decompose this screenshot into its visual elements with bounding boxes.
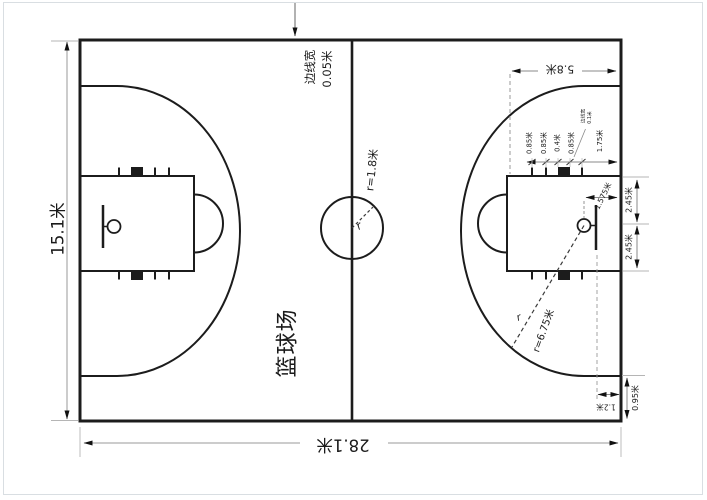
right-basket [578,205,597,250]
lane-hash-label-3: 0.4米 [553,134,562,152]
lane-hash-label-2: 0.85米 [539,132,548,154]
right-free-throw-circle [478,195,507,253]
line-width-leader [574,129,586,157]
three-point-gap-label: 0.95米 [630,385,640,411]
court-diagram-svg: 15.1米 边线宽 0.05米 r=1.8米 r 篮球场 28.1米 5.8米 … [0,0,707,500]
court-lines [80,40,621,421]
three-point-radius-symbol: r [515,312,523,324]
left-free-throw-circle [194,195,223,253]
free-throw-distance-label: 5.8米 [546,63,575,76]
lane-line-width-label-line1: 边线宽 [580,109,587,124]
right-key-hash-marks [532,167,582,280]
labels: 15.1米 边线宽 0.05米 r=1.8米 r 篮球场 28.1米 5.8米 … [49,49,641,454]
center-radius-symbol: r [354,219,366,233]
left-neutral-zone-bottom [131,271,143,280]
lane-half-upper-label: 2.45米 [624,187,634,213]
lane-line-width-label-line2: 0.1米 [586,111,593,124]
court-title: 篮球场 [276,308,301,377]
basketball-court-diagram: 15.1米 边线宽 0.05米 r=1.8米 r 篮球场 28.1米 5.8米 … [0,0,707,500]
lane-half-lower-label: 2.45米 [624,234,634,260]
court-width-label: 15.1米 [49,202,68,255]
left-rim [108,220,121,233]
left-basket [103,205,121,248]
sideline-width-label-line1: 边线宽 [303,49,317,84]
right-neutral-zone-bottom [558,271,570,280]
first-hash-label: 1.75米 [595,130,604,153]
center-circle-radius-label: r=1.8米 [363,148,380,191]
backboard-baseline-label: 1.2米 [596,403,616,413]
sideline-width-label-line2: 0.05米 [320,50,334,88]
basket-baseline-label: 1.575米 [592,180,614,211]
lane-hash-label-1: 0.85米 [525,132,534,154]
left-key [80,176,194,271]
right-neutral-zone-top [558,167,570,176]
left-neutral-zone-top [131,167,143,176]
court-boundary [80,40,621,421]
three-point-radius-label: r=6.75米 [529,307,557,354]
court-length-label: 28.1米 [316,436,369,455]
left-key-hash-marks [119,167,169,280]
lane-hash-label-4: 0.85米 [567,132,576,154]
